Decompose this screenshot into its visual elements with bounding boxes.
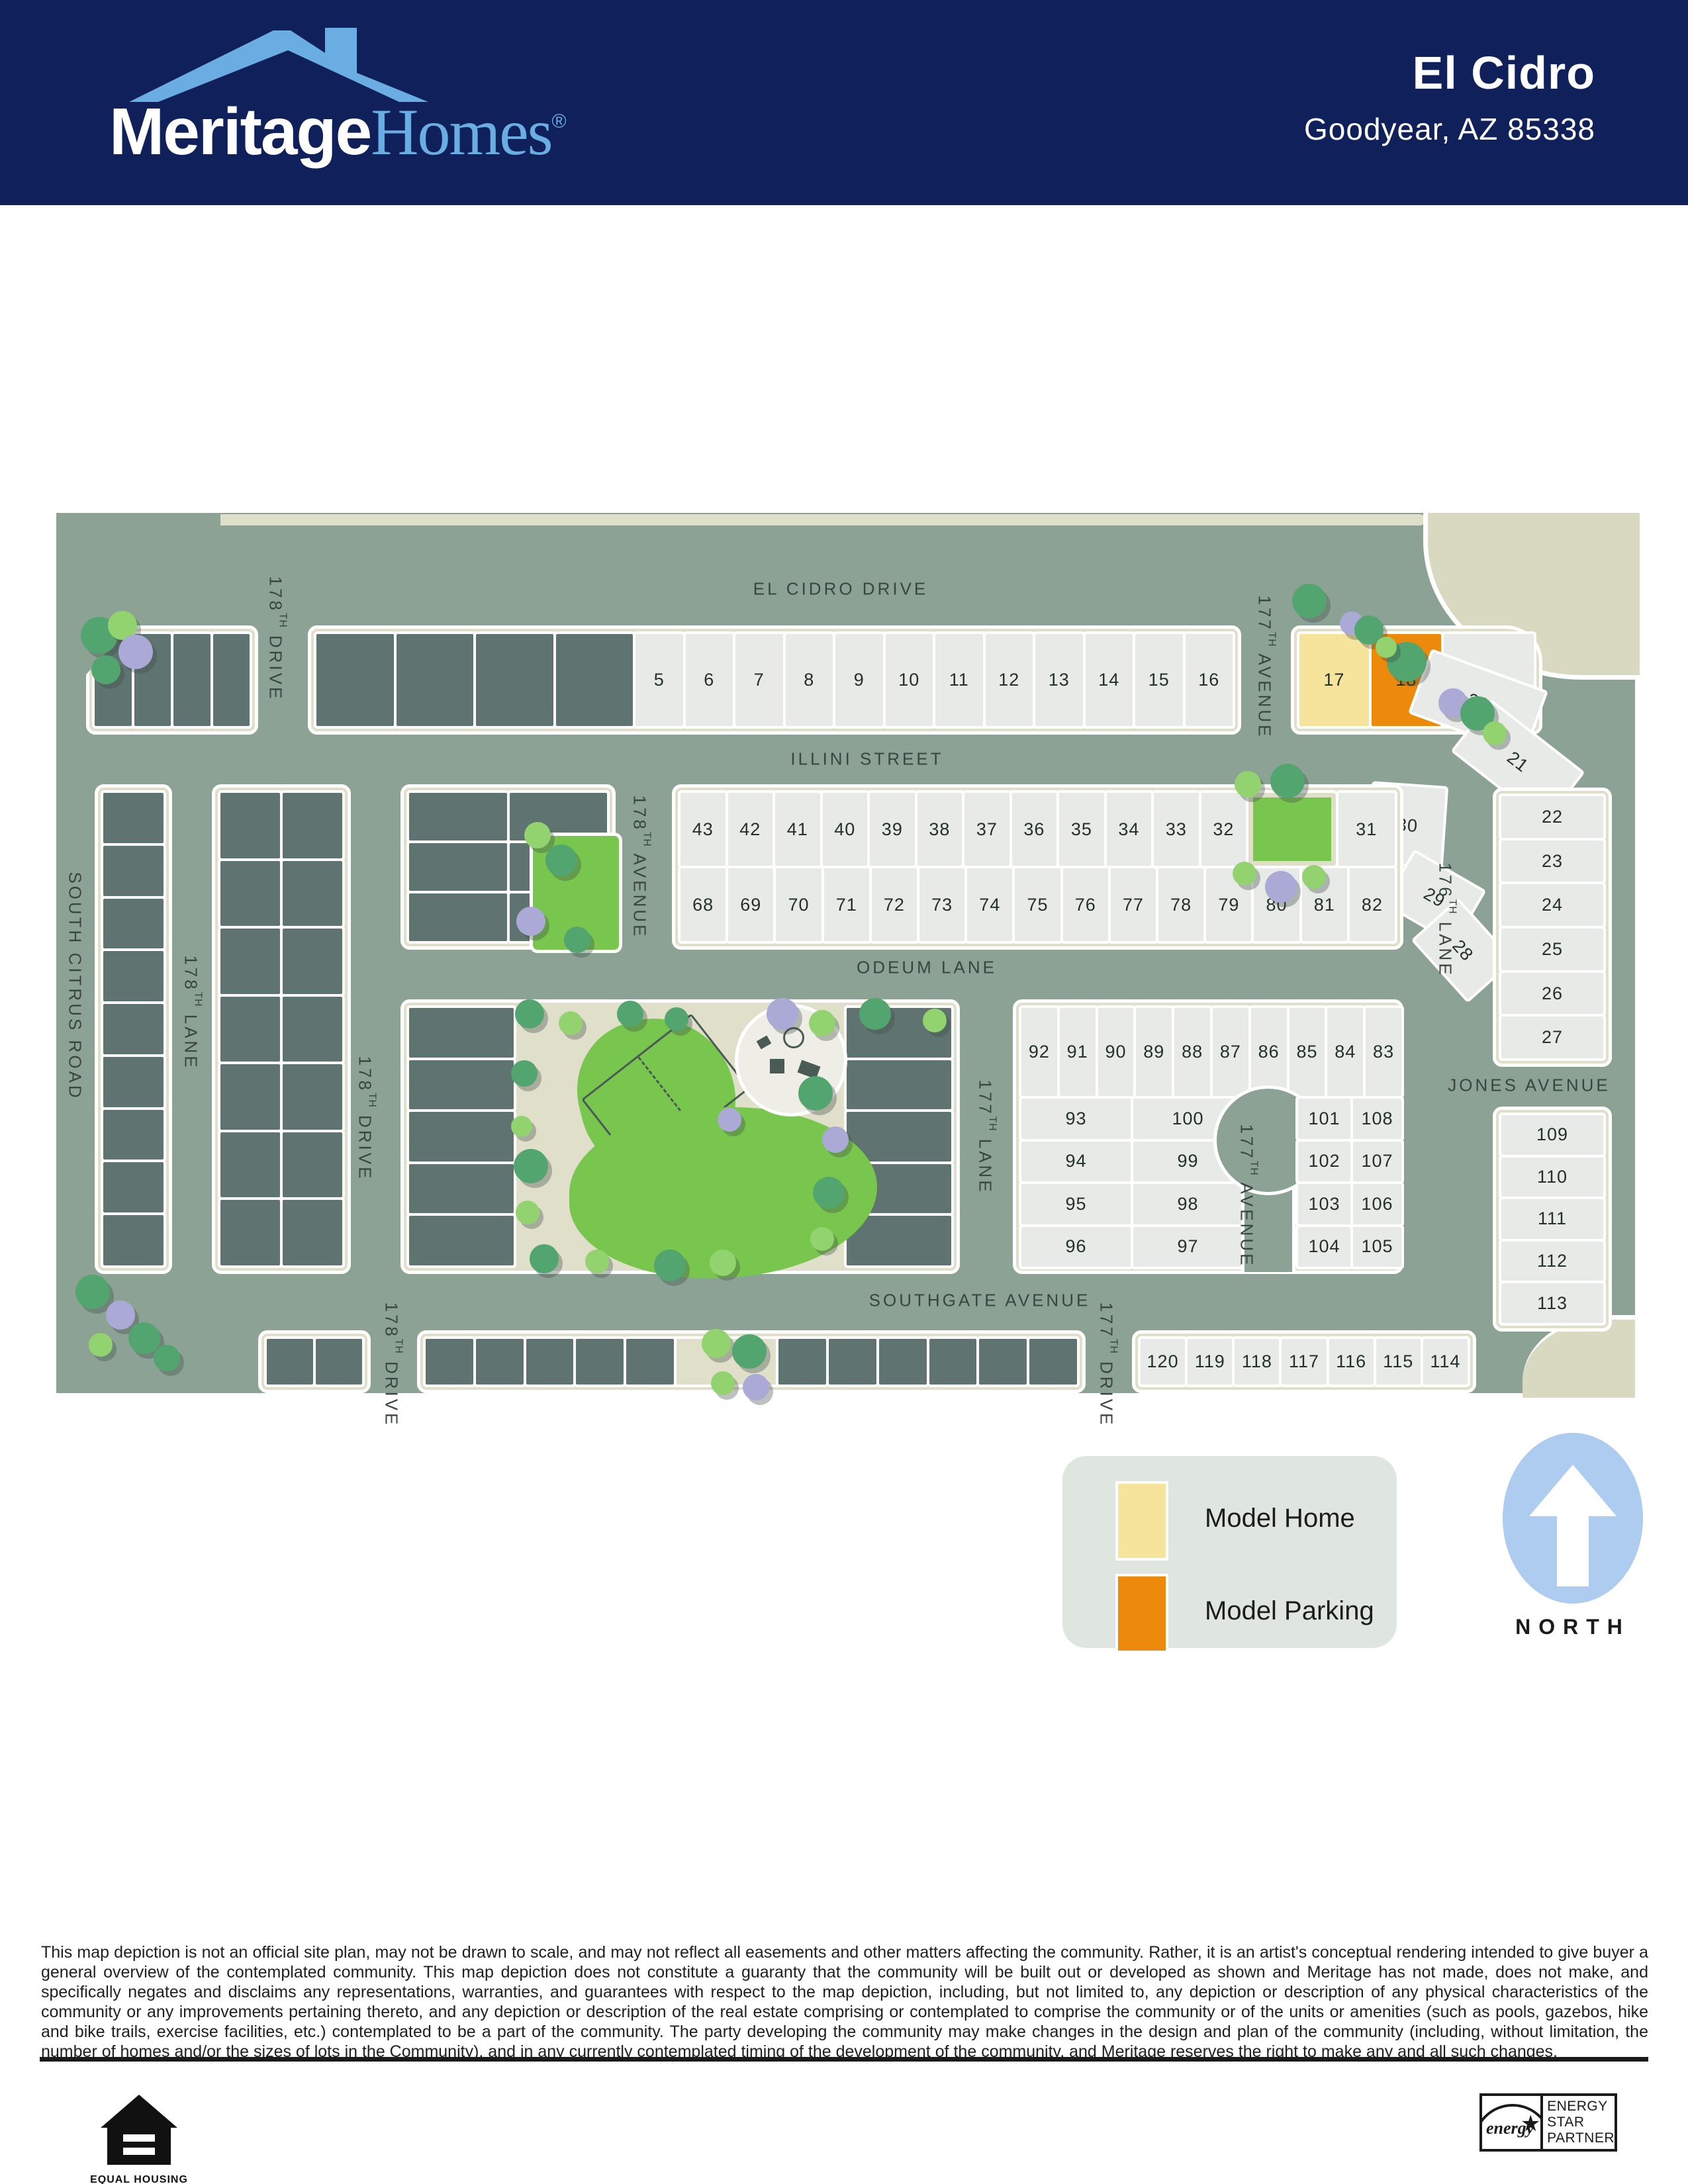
- lot-sold: [409, 1008, 514, 1058]
- lot-40: 40: [823, 793, 868, 866]
- lot-6: 6: [686, 634, 733, 726]
- lot-block-double: [212, 784, 351, 1274]
- lot-74: 74: [967, 868, 1012, 941]
- lot-78: 78: [1158, 868, 1203, 941]
- lot-92: 92: [1021, 1008, 1057, 1096]
- tree-icon: [822, 1126, 849, 1153]
- central-park-block: [400, 999, 960, 1274]
- lot-5: 5: [635, 634, 683, 726]
- lot-70: 70: [776, 868, 821, 941]
- community-location: Goodyear, AZ 85338: [1304, 111, 1595, 147]
- lot-sold: [283, 1064, 342, 1130]
- lot-72: 72: [872, 868, 917, 941]
- lot-23: 23: [1501, 841, 1603, 882]
- tree-icon: [1292, 584, 1327, 618]
- lot-sold: [220, 793, 280, 858]
- street-label-178th-avenue: 178TH AVENUE: [630, 796, 653, 939]
- tree-icon: [923, 1009, 947, 1032]
- lot-sold: [267, 1339, 313, 1385]
- tree-icon: [516, 907, 545, 936]
- lot-43: 43: [680, 793, 726, 866]
- lot-24: 24: [1501, 884, 1603, 926]
- lot-90: 90: [1098, 1008, 1134, 1096]
- lot-110: 110: [1501, 1158, 1603, 1197]
- lot-75: 75: [1015, 868, 1060, 941]
- tree-icon: [1376, 637, 1397, 658]
- tree-icon: [813, 1177, 845, 1208]
- street-label-south-citrus-road: SOUTH CITRUS ROAD: [65, 872, 85, 1100]
- site-plan-page: MeritageHomes® El Cidro Goodyear, AZ 853…: [0, 0, 1688, 2184]
- energy-star-text: ENERGY STAR PARTNER: [1543, 2096, 1615, 2149]
- lot-sold: [409, 793, 507, 841]
- registered-mark: ®: [552, 111, 567, 132]
- tree-icon: [524, 822, 551, 848]
- road-edge-strip: [220, 514, 1425, 525]
- lot-83: 83: [1366, 1008, 1401, 1096]
- lot-27: 27: [1501, 1017, 1603, 1058]
- tree-icon: [75, 1275, 110, 1309]
- lot-sold: [316, 634, 394, 726]
- lot-39: 39: [870, 793, 915, 866]
- lot-sold: [220, 1064, 280, 1130]
- lot-block-114-120: 120119118117116115114: [1132, 1330, 1476, 1393]
- lot-sold: [220, 997, 280, 1062]
- lot-93: 93: [1021, 1099, 1131, 1139]
- lot-sold: [476, 634, 553, 726]
- star-icon: ★: [1521, 2111, 1540, 2137]
- lot-sold: [103, 1004, 164, 1054]
- lot-69: 69: [728, 868, 773, 941]
- model-parking-label: Model Parking: [1205, 1596, 1374, 1626]
- tree-icon: [545, 844, 577, 876]
- lot-22: 22: [1501, 796, 1603, 838]
- street-label-177th-avenue-north: 177TH AVENUE: [1254, 596, 1278, 739]
- lot-98: 98: [1133, 1184, 1243, 1224]
- lot-96: 96: [1021, 1227, 1131, 1267]
- lot-105: 105: [1353, 1227, 1401, 1267]
- lot-82: 82: [1350, 868, 1395, 941]
- lot-column-22-27: 222324252627: [1493, 788, 1612, 1067]
- logo-meritage-text: Meritage: [109, 95, 371, 169]
- lot-118: 118: [1235, 1339, 1279, 1385]
- street-label-178th-drive-north: 178TH DRIVE: [265, 576, 289, 702]
- tree-icon: [91, 655, 120, 684]
- lot-32: 32: [1201, 793, 1246, 866]
- lot-89: 89: [1136, 1008, 1172, 1096]
- lot-sold: [847, 1060, 951, 1110]
- lot-34: 34: [1107, 793, 1152, 866]
- tree-icon: [118, 635, 153, 669]
- neighborhood-park: [1248, 793, 1335, 866]
- logo-wordmark: MeritageHomes®: [109, 94, 567, 170]
- street-label-177th-lane: 177TH LANE: [975, 1079, 998, 1194]
- lot-113: 113: [1501, 1283, 1603, 1323]
- street-label-178th-drive-south: 178TH DRIVE: [381, 1302, 404, 1428]
- community-name: El Cidro: [1304, 46, 1595, 99]
- lot-sold: [173, 634, 211, 726]
- lot-sold: [103, 1110, 164, 1160]
- tree-icon: [718, 1108, 741, 1132]
- lot-106: 106: [1353, 1184, 1401, 1224]
- lot-42: 42: [728, 793, 773, 866]
- lot-sold: [409, 1112, 514, 1161]
- tree-icon: [654, 1250, 686, 1281]
- tree-icon: [564, 927, 590, 953]
- lot-76: 76: [1063, 868, 1108, 941]
- lot-86: 86: [1251, 1008, 1287, 1096]
- lot-sold: [283, 1132, 342, 1198]
- lot-103: 103: [1298, 1184, 1350, 1224]
- lot-sold: [283, 1200, 342, 1265]
- model-home-swatch: [1115, 1481, 1168, 1561]
- lot-block-5-16: 5678910111213141516: [308, 625, 1241, 735]
- tree-icon: [128, 1322, 160, 1354]
- lot-91: 91: [1060, 1008, 1096, 1096]
- lot-sold: [409, 893, 507, 941]
- lot-41: 41: [775, 793, 820, 866]
- lot-sold: [556, 634, 633, 726]
- lot-7: 7: [735, 634, 783, 726]
- lot-16: 16: [1186, 634, 1233, 726]
- lot-sold: [397, 634, 474, 726]
- lot-104: 104: [1298, 1227, 1350, 1267]
- tree-icon: [732, 1334, 767, 1369]
- tree-icon: [1302, 865, 1326, 889]
- tree-icon: [809, 1010, 835, 1036]
- lot-87: 87: [1213, 1008, 1248, 1096]
- lot-sold: [220, 861, 280, 927]
- lot-116: 116: [1329, 1339, 1374, 1385]
- north-label: NORTH: [1483, 1615, 1663, 1639]
- lot-17: 17: [1299, 634, 1369, 726]
- lot-sold: [103, 846, 164, 896]
- energy-star-partner-logo: energy ★ ENERGY STAR PARTNER: [1479, 2093, 1617, 2152]
- tree-icon: [710, 1250, 736, 1276]
- lot-sold: [409, 1216, 514, 1265]
- site-plan-map: 5678910111213141516 171819 2021 302928 4…: [56, 513, 1635, 1393]
- lot-sold: [220, 929, 280, 994]
- north-arrow-icon: [1503, 1433, 1643, 1604]
- lot-sold: [103, 1162, 164, 1212]
- tree-icon: [585, 1250, 609, 1273]
- lot-block-32-82: 43424140393837363534333231 6869707172737…: [672, 784, 1403, 950]
- tree-icon: [617, 1001, 643, 1027]
- lot-sold: [213, 634, 250, 726]
- lot-14: 14: [1086, 634, 1133, 726]
- lot-101: 101: [1298, 1099, 1350, 1139]
- lot-120: 120: [1141, 1339, 1185, 1385]
- tree-icon: [798, 1076, 833, 1111]
- lot-sold: [220, 1132, 280, 1198]
- street-label-176th-lane: 176TH LANE: [1435, 862, 1458, 977]
- tree-icon: [711, 1371, 735, 1395]
- lot-117: 117: [1282, 1339, 1326, 1385]
- tree-icon: [767, 998, 798, 1030]
- lot-25: 25: [1501, 929, 1603, 970]
- lot-111: 111: [1501, 1199, 1603, 1239]
- lot-112: 112: [1501, 1242, 1603, 1281]
- lot-sold: [283, 929, 342, 994]
- tree-icon: [1270, 764, 1305, 798]
- lot-84: 84: [1327, 1008, 1363, 1096]
- map-legend: Model Home Model Parking: [1062, 1456, 1397, 1648]
- tree-icon: [516, 1201, 539, 1224]
- lot-114: 114: [1423, 1339, 1468, 1385]
- lot-sold: [103, 1057, 164, 1107]
- tree-icon: [559, 1011, 583, 1035]
- tree-icon: [810, 1227, 834, 1251]
- disclaimer-text: This map depiction is not an official si…: [41, 1942, 1648, 2062]
- lot-73: 73: [919, 868, 964, 941]
- tree-icon: [154, 1345, 180, 1371]
- lot-sold: [283, 997, 342, 1062]
- lot-column-west: [95, 784, 172, 1274]
- lot-9: 9: [835, 634, 883, 726]
- lot-block-south-small: [258, 1330, 371, 1393]
- street-label-southgate-avenue: SOUTHGATE AVENUE: [869, 1291, 1091, 1311]
- lot-31: 31: [1338, 793, 1395, 866]
- lot-107: 107: [1353, 1142, 1401, 1182]
- tree-icon: [1235, 771, 1261, 797]
- tree-icon: [1233, 862, 1256, 886]
- lot-35: 35: [1059, 793, 1104, 866]
- street-label-el-cidro-drive: EL CIDRO DRIVE: [753, 579, 929, 600]
- lot-sold: [283, 793, 342, 858]
- model-parking-swatch: [1115, 1574, 1168, 1653]
- lot-12: 12: [986, 634, 1033, 726]
- lot-119: 119: [1188, 1339, 1232, 1385]
- tree-icon: [702, 1329, 731, 1358]
- lot-33: 33: [1154, 793, 1199, 866]
- street-label-177th-avenue-south: 177TH AVENUE: [1237, 1124, 1260, 1268]
- lot-97: 97: [1133, 1227, 1243, 1267]
- street-label-177th-drive: 177TH DRIVE: [1096, 1302, 1119, 1428]
- street-label-jones-avenue: JONES AVENUE: [1448, 1075, 1610, 1096]
- lot-sold: [409, 1060, 514, 1110]
- footer-divider: [40, 2057, 1648, 2062]
- central-park: [516, 1008, 844, 1265]
- street-label-178th-drive-mid: 178TH DRIVE: [355, 1056, 378, 1181]
- model-home-label: Model Home: [1205, 1504, 1355, 1533]
- lot-13: 13: [1035, 634, 1083, 726]
- logo-homes-text: Homes: [371, 95, 551, 169]
- tree-icon: [665, 1007, 688, 1031]
- lot-sold: [103, 951, 164, 1001]
- lot-36: 36: [1012, 793, 1057, 866]
- lot-26: 26: [1501, 973, 1603, 1015]
- tree-icon: [106, 1300, 135, 1330]
- lot-sold: [103, 793, 164, 843]
- lot-108: 108: [1353, 1099, 1401, 1139]
- lot-77: 77: [1111, 868, 1156, 941]
- lot-sold: [316, 1339, 362, 1385]
- lot-sold: [220, 1200, 280, 1265]
- tree-icon: [530, 1244, 559, 1273]
- lot-109: 109: [1501, 1115, 1603, 1155]
- lot-115: 115: [1376, 1339, 1421, 1385]
- lot-8: 8: [786, 634, 833, 726]
- lot-88: 88: [1174, 1008, 1210, 1096]
- lot-column-109-113: 109110111112113: [1493, 1107, 1612, 1332]
- tree-icon: [89, 1333, 113, 1357]
- lot-sold: [103, 1215, 164, 1265]
- lot-sold: [103, 899, 164, 949]
- tree-icon: [1483, 721, 1507, 745]
- lot-15: 15: [1135, 634, 1183, 726]
- tree-icon: [511, 1116, 532, 1137]
- street-label-178th-lane: 178TH LANE: [181, 955, 204, 1069]
- tree-icon: [1265, 871, 1297, 903]
- lot-95: 95: [1021, 1184, 1131, 1224]
- lot-block-83-108: 92919089888786858483 93949596 100999897 …: [1013, 999, 1403, 1274]
- tree-icon: [515, 999, 544, 1028]
- street-label-illini-street: ILLINI STREET: [790, 749, 943, 770]
- lot-sold: [409, 843, 507, 891]
- roof-icon: [129, 24, 487, 103]
- lot-71: 71: [824, 868, 869, 941]
- lot-102: 102: [1298, 1142, 1350, 1182]
- lot-10: 10: [886, 634, 933, 726]
- meritage-homes-logo: MeritageHomes®: [109, 20, 771, 185]
- tree-icon: [743, 1374, 769, 1400]
- lot-sold: [409, 1164, 514, 1214]
- lot-sold: [283, 861, 342, 927]
- lot-11: 11: [935, 634, 983, 726]
- header-bar: MeritageHomes® El Cidro Goodyear, AZ 853…: [0, 0, 1688, 205]
- lot-85: 85: [1289, 1008, 1325, 1096]
- tree-icon: [514, 1149, 548, 1183]
- lot-68: 68: [680, 868, 726, 941]
- lot-37: 37: [964, 793, 1009, 866]
- lot-38: 38: [917, 793, 962, 866]
- street-label-odeum-lane: ODEUM LANE: [857, 958, 997, 978]
- lot-94: 94: [1021, 1142, 1131, 1182]
- tree-icon: [511, 1060, 538, 1087]
- tree-icon: [859, 998, 891, 1030]
